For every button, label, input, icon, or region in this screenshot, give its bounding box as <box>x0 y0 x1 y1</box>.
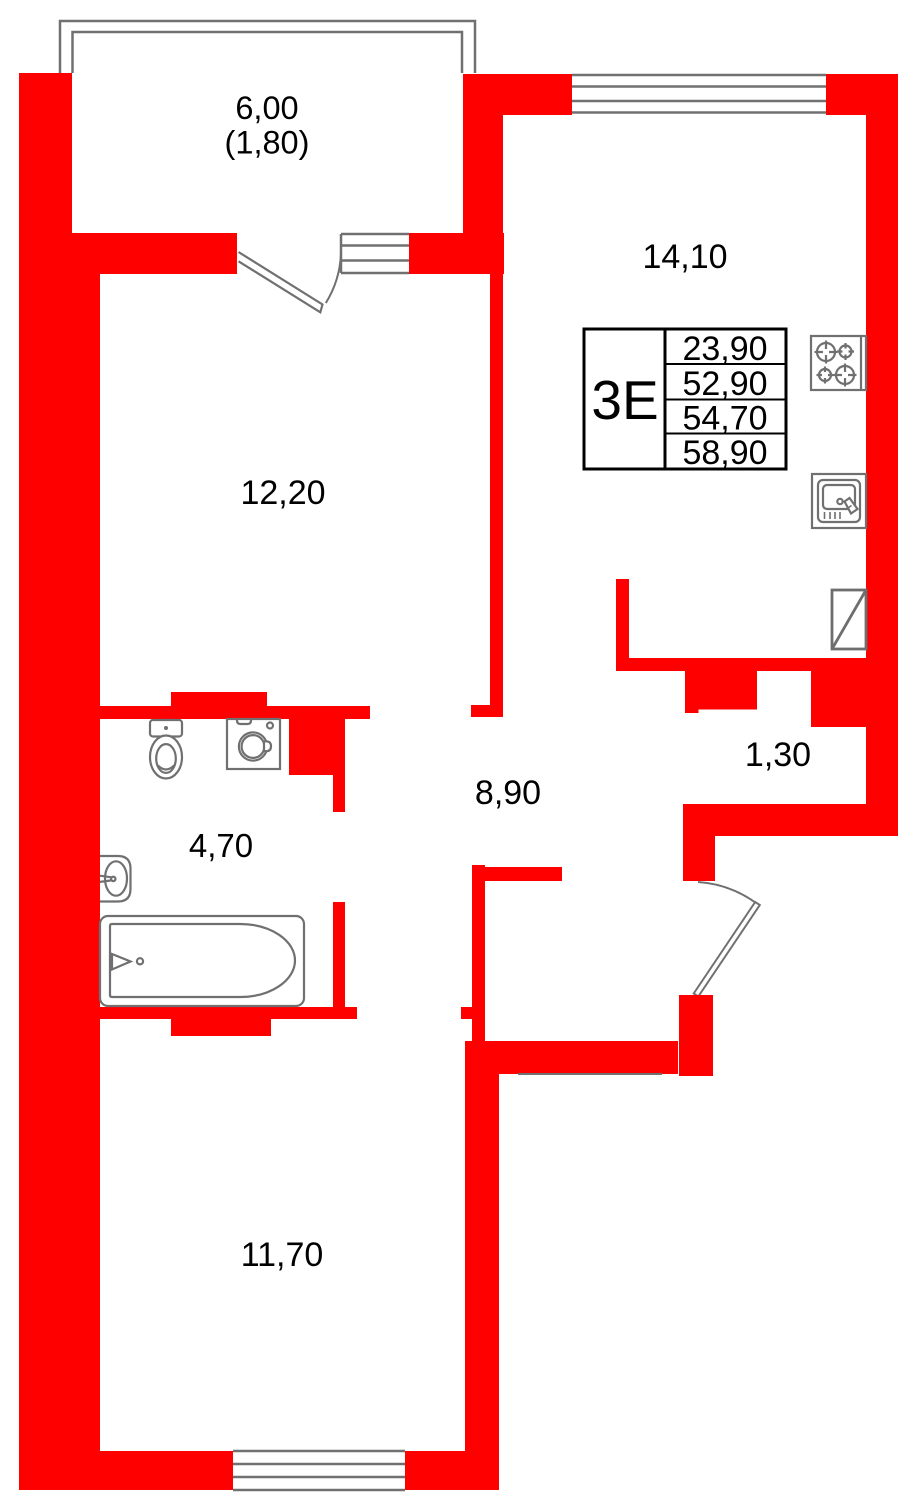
svg-text:4,70: 4,70 <box>189 827 253 864</box>
svg-text:58,90: 58,90 <box>682 434 767 472</box>
svg-text:14,10: 14,10 <box>642 238 727 276</box>
svg-text:8,90: 8,90 <box>475 774 541 812</box>
svg-text:23,90: 23,90 <box>682 330 767 368</box>
svg-text:(1,80): (1,80) <box>225 125 310 161</box>
svg-text:3Е: 3Е <box>591 369 658 431</box>
svg-text:12,20: 12,20 <box>240 474 325 512</box>
svg-text:6,00: 6,00 <box>235 90 298 126</box>
svg-text:54,70: 54,70 <box>682 400 767 438</box>
svg-text:1,30: 1,30 <box>745 736 811 774</box>
svg-text:52,90: 52,90 <box>682 365 767 403</box>
svg-text:11,70: 11,70 <box>241 1236 324 1274</box>
